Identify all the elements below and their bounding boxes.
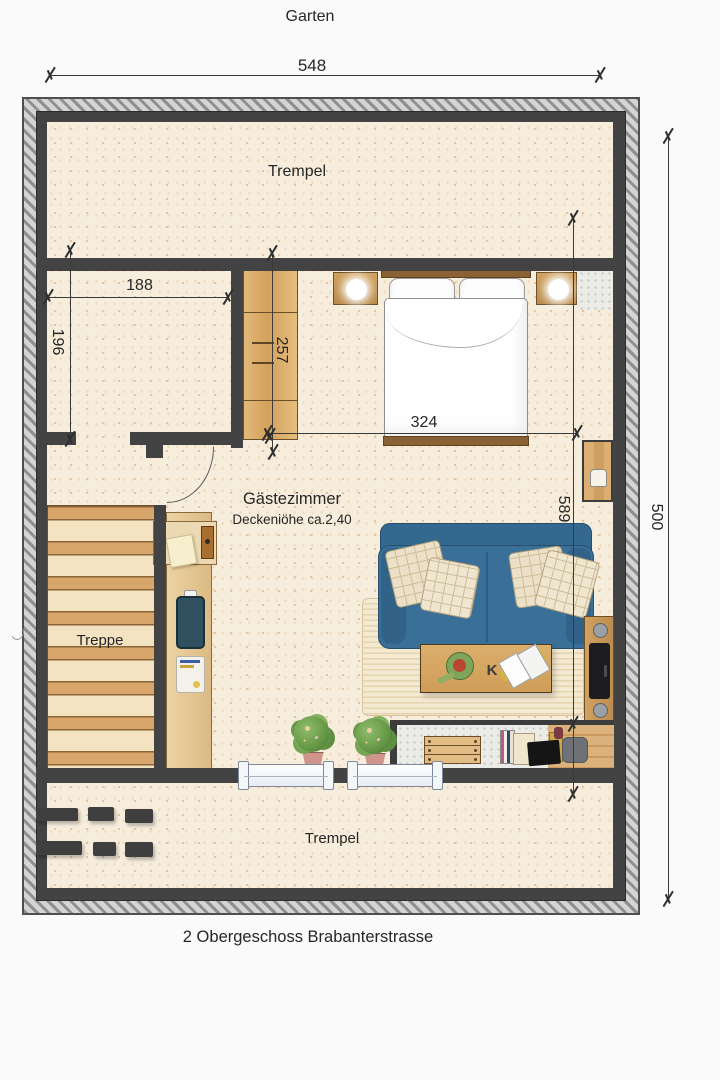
cabinet-lamp-icon — [590, 469, 607, 487]
tablet-icon — [176, 596, 205, 649]
dim-line-500 — [668, 136, 669, 899]
dim-label-196: 196 — [48, 322, 66, 362]
dim-label-500: 500 — [647, 497, 665, 537]
trempel-top-label: Trempel — [257, 163, 337, 181]
dim-line-589 — [573, 218, 574, 794]
side-cabinet — [582, 440, 613, 502]
dashed-wall-segment — [36, 808, 78, 821]
window-left — [240, 764, 332, 787]
dim-line-188 — [48, 297, 228, 298]
tv-icon — [589, 643, 610, 699]
wall-stairs-side — [154, 505, 166, 773]
treppe-label: Treppe — [65, 632, 135, 649]
small-pouch — [554, 727, 563, 739]
guestroom-name-label: Gästezimmer — [222, 490, 362, 509]
sticky-note-icon — [166, 534, 198, 568]
dashed-wall-segment — [36, 841, 82, 855]
dashed-wall-segment — [125, 809, 153, 823]
dashed-wall-segment — [125, 842, 153, 857]
sofa-pillow — [419, 557, 480, 620]
floor-plan-canvas: Garten 548 Trempel Trempel 188 196 257 — [0, 0, 720, 1080]
seat-cushion — [562, 737, 588, 763]
garten-label: Garten — [240, 8, 380, 26]
dim-label-257: 257 — [272, 330, 290, 370]
clipboard-icon — [201, 526, 214, 559]
notecard-icon — [176, 656, 205, 693]
dim-tick — [591, 66, 609, 84]
dim-label-589: 589 — [554, 489, 572, 529]
sofa — [378, 523, 594, 651]
plan-caption: 2 Obergeschoss Brabanterstrasse — [108, 928, 508, 947]
wall-storage-right — [231, 258, 243, 448]
wardrobe-handle-icon — [252, 342, 274, 344]
speaker-knob-icon — [593, 703, 608, 718]
drawer-chest — [424, 736, 481, 764]
lamp-right-icon — [547, 278, 570, 301]
wall-top-trempel — [36, 258, 624, 271]
open-book-icon — [498, 643, 548, 689]
footboard — [383, 436, 529, 446]
speaker-knob-icon — [593, 623, 608, 638]
potted-plant-icon — [294, 716, 330, 752]
coffee-table: K — [420, 644, 552, 693]
dashed-wall-segment — [93, 842, 116, 856]
dim-line-324 — [267, 433, 577, 434]
dim-label-548: 548 — [288, 56, 336, 76]
niche-wall-left — [390, 720, 397, 768]
guestroom-ceiling-label: Deckeniöhe ca.2,40 — [217, 512, 367, 527]
dashed-wall-segment — [88, 807, 114, 821]
potted-plant-icon — [356, 718, 392, 754]
dim-tick — [41, 66, 59, 84]
lamp-left-icon — [345, 278, 368, 301]
trempel-bottom-label: Trempel — [292, 830, 372, 847]
dim-label-324: 324 — [398, 414, 450, 432]
dim-label-188: 188 — [112, 277, 167, 295]
wall-notch — [146, 432, 163, 458]
tv-board — [584, 616, 614, 722]
spoon-icon — [437, 671, 456, 684]
window-right — [349, 764, 441, 787]
laptop-icon — [527, 740, 561, 767]
dim-line-196 — [70, 250, 71, 439]
